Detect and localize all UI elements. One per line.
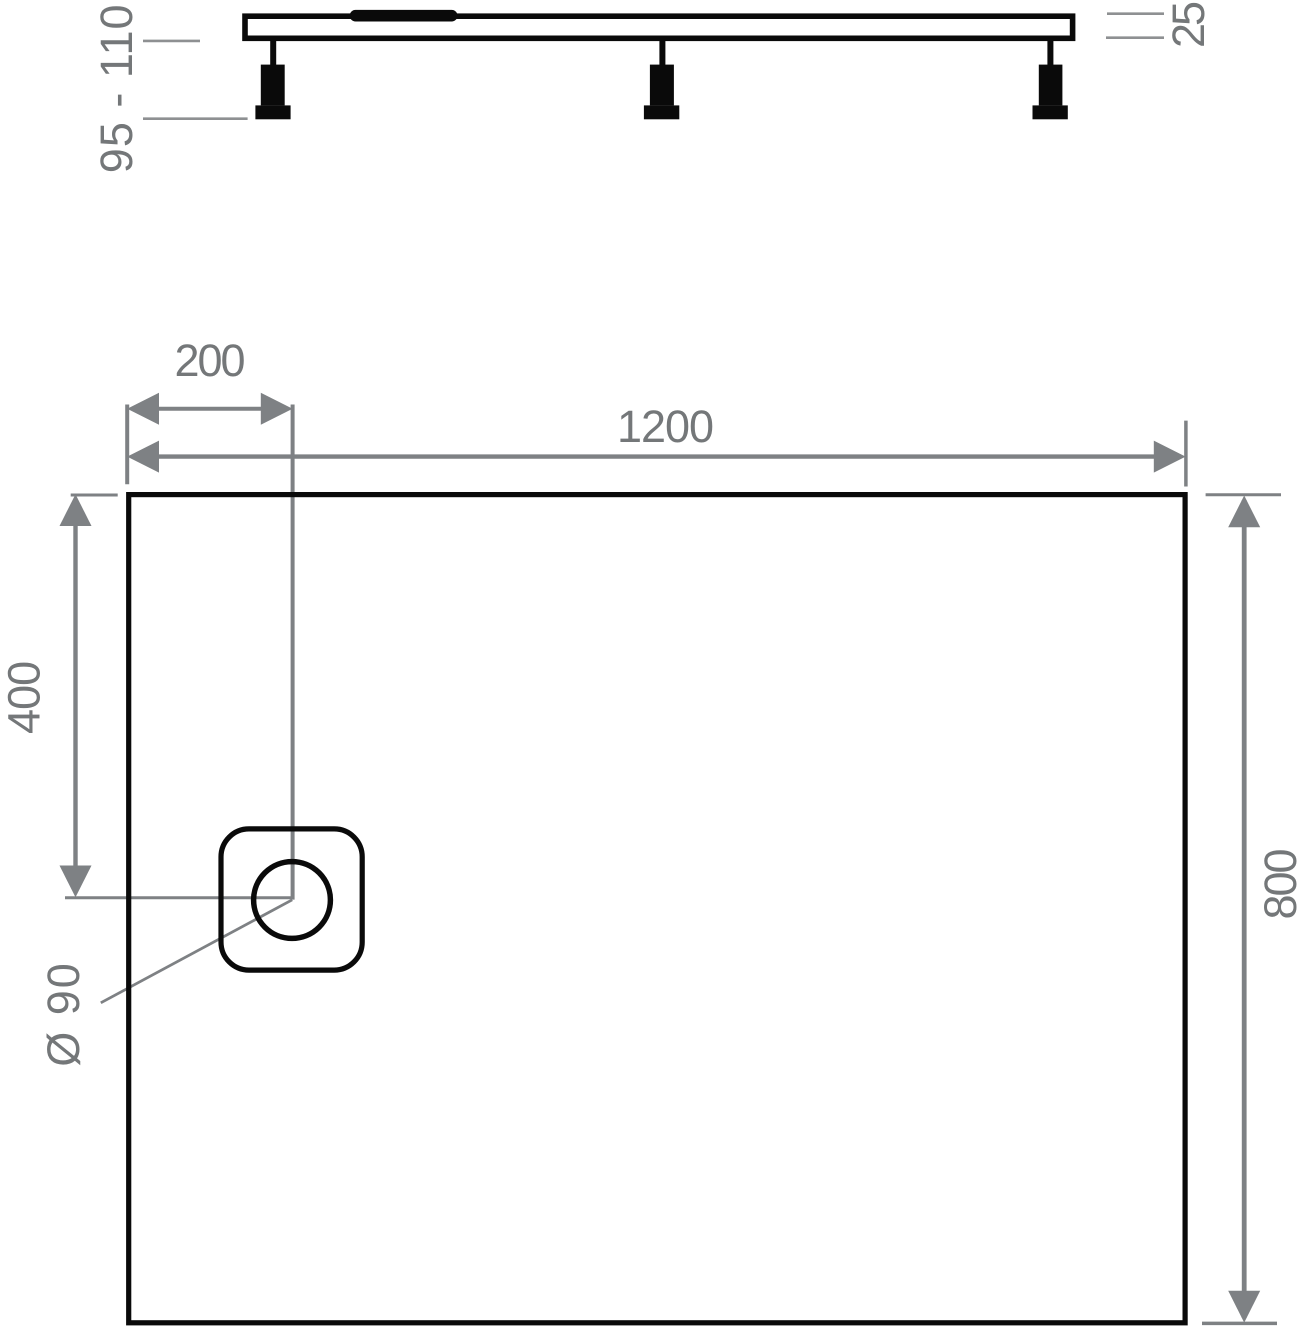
svg-text:Ø 90: Ø 90	[38, 961, 89, 1067]
svg-text:200: 200	[174, 335, 244, 386]
svg-text:400: 400	[0, 662, 50, 734]
svg-text:25: 25	[1163, 2, 1214, 48]
svg-text:95 - 110: 95 - 110	[91, 3, 142, 173]
svg-text:1200: 1200	[617, 401, 713, 452]
svg-text:800: 800	[1255, 849, 1306, 919]
